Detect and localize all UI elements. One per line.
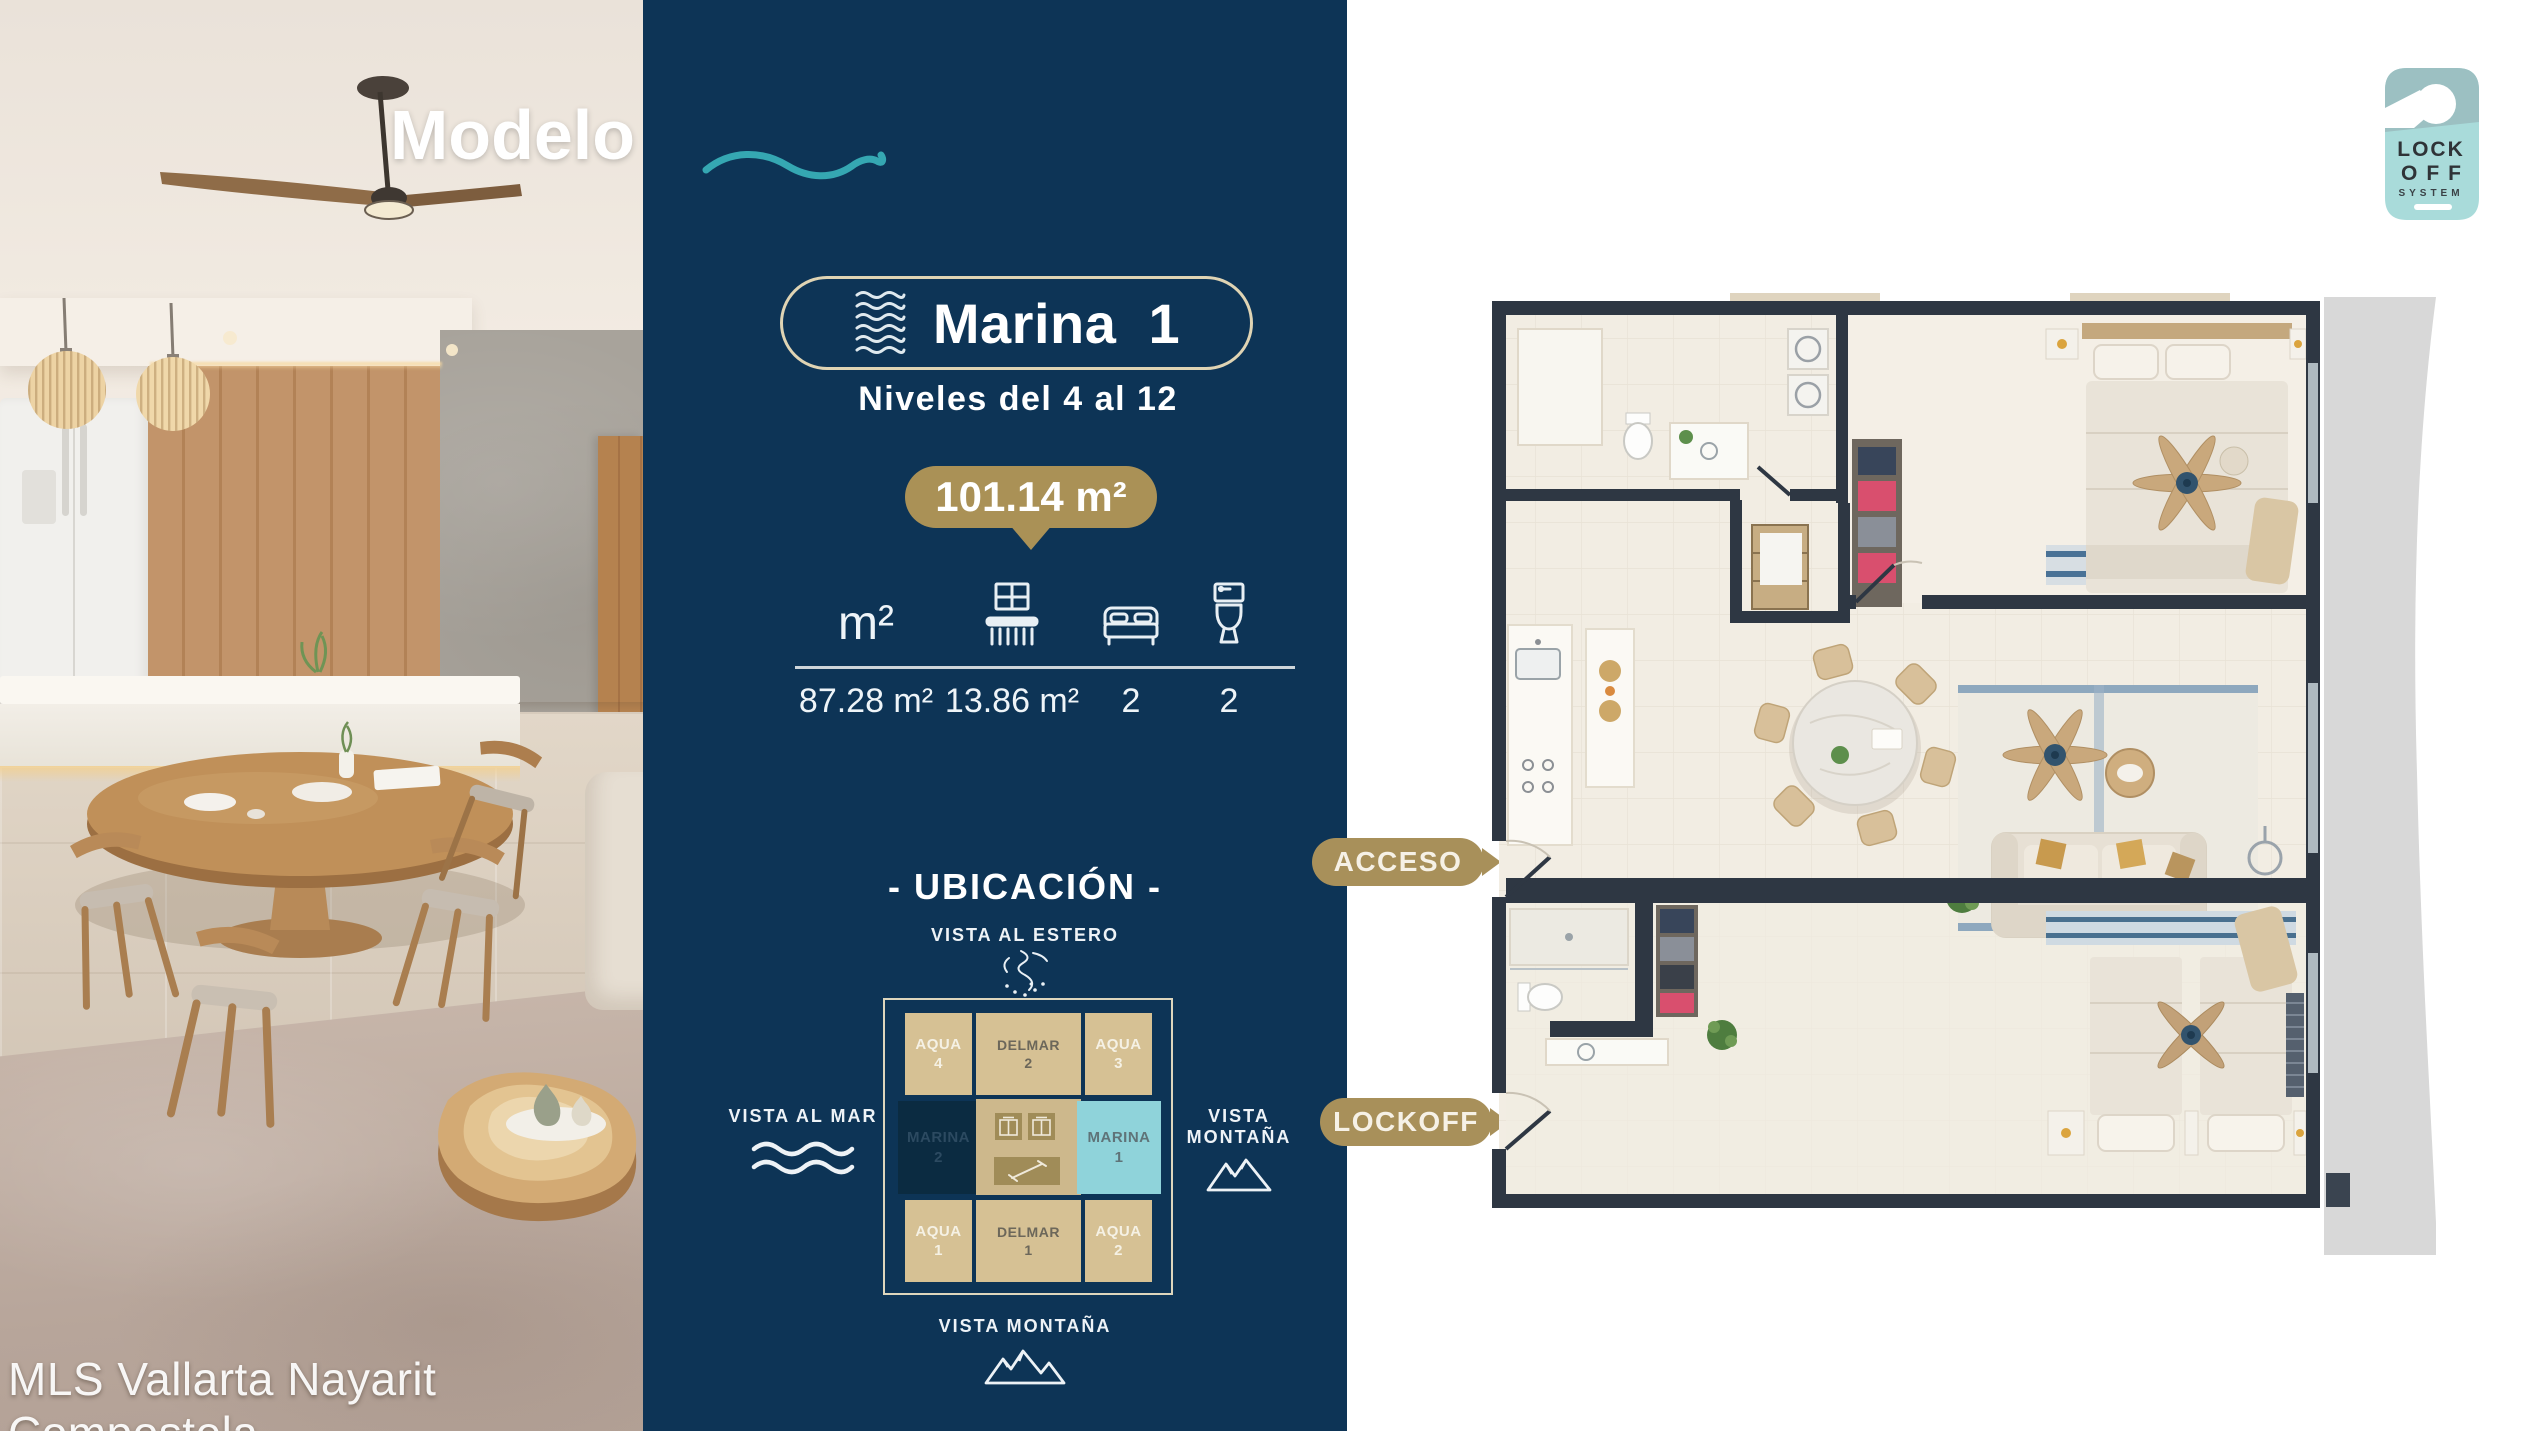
toilet-icon [1169, 578, 1289, 648]
bathrooms-value: 2 [1149, 682, 1309, 721]
log-coffee-table [438, 1072, 636, 1221]
logo-line1: LOCK [2372, 138, 2490, 162]
vista-mar-block: VISTA AL MAR [728, 1106, 878, 1179]
ubicacion-heading: - UBICACIÓN - [775, 866, 1275, 908]
spec-table: m² [795, 578, 1295, 728]
photo-furniture [0, 0, 643, 1431]
location-grid: AQUA4 DELMAR2 AQUA3 MARINA2 [883, 998, 1173, 1295]
total-area-value: 101.14 m² [935, 473, 1126, 521]
hero-photo: MLS Vallarta Nayarit Compostela [0, 0, 643, 1431]
title-wave-icon [700, 144, 890, 184]
mountains-icon [983, 1345, 1067, 1387]
interior-area-value: 87.28 m² [786, 682, 946, 721]
unit-badge: Marina 1 [780, 276, 1253, 370]
floorplan-render [1490, 293, 2450, 1273]
vista-montana-right-label: VISTA MONTAÑA [1164, 1106, 1314, 1148]
lockoff-label: LOCKOFF [1333, 1106, 1479, 1138]
brochure-page: MLS Vallarta Nayarit Compostela Modelo M… [0, 0, 2545, 1431]
lockoff-system-logo: LOCK OFF SYSTEM [2372, 62, 2490, 234]
dining-chair [171, 922, 291, 1123]
levels-label: Niveles del 4 al 12 [768, 380, 1268, 419]
spec-divider [795, 666, 1295, 669]
vista-mar-label: VISTA AL MAR [728, 1106, 878, 1127]
elevator-icon [1028, 1113, 1055, 1140]
vista-montana-bottom-label: VISTA MONTAÑA [775, 1316, 1275, 1337]
logo-line2: OFF [2372, 162, 2490, 186]
grid-cell-delmar2: DELMAR2 [976, 1013, 1081, 1095]
pendant-lamp-icon [28, 298, 106, 429]
grid-cell-aqua4: AQUA4 [905, 1013, 972, 1095]
waves-stack-icon [853, 289, 907, 357]
interior-area-icon: m² [806, 578, 926, 648]
grid-cell-delmar1: DELMAR1 [976, 1200, 1081, 1282]
vista-montana-right-block: VISTA MONTAÑA [1164, 1106, 1314, 1194]
lockoff-badge: LOCKOFF [1320, 1098, 1492, 1146]
grid-cell-aqua1: AQUA1 [905, 1200, 972, 1282]
plant-icon [302, 632, 326, 672]
grid-cell-aqua3: AQUA3 [1085, 1013, 1152, 1095]
acceso-label: ACCESO [1334, 846, 1463, 878]
total-area-badge: 101.14 m² [905, 466, 1157, 528]
grid-cell-marina1: MARINA1 [1077, 1101, 1161, 1194]
grid-cell-marina2: MARINA2 [898, 1101, 979, 1194]
facade-curve [2324, 297, 2436, 1255]
vista-montana-bottom-block: VISTA MONTAÑA [775, 1316, 1275, 1387]
elevator-icon [995, 1113, 1022, 1140]
grid-cell-core [976, 1099, 1081, 1195]
watermark: MLS Vallarta Nayarit Compostela [8, 1352, 643, 1431]
logo-line3: SYSTEM [2372, 188, 2490, 199]
closet-room [1752, 525, 1808, 609]
unit-name: Marina 1 [933, 291, 1180, 356]
balcony-icon [952, 578, 1072, 648]
mountain-icon [1205, 1156, 1273, 1194]
vista-estero-label: VISTA AL ESTERO [775, 925, 1275, 946]
acceso-badge: ACCESO [1312, 838, 1484, 886]
stairs-icon [994, 1157, 1060, 1185]
estero-icon [987, 948, 1063, 998]
pendant-lamp-icon [136, 303, 210, 431]
grid-cell-aqua2: AQUA2 [1085, 1200, 1152, 1282]
sea-waves-icon [751, 1135, 855, 1179]
